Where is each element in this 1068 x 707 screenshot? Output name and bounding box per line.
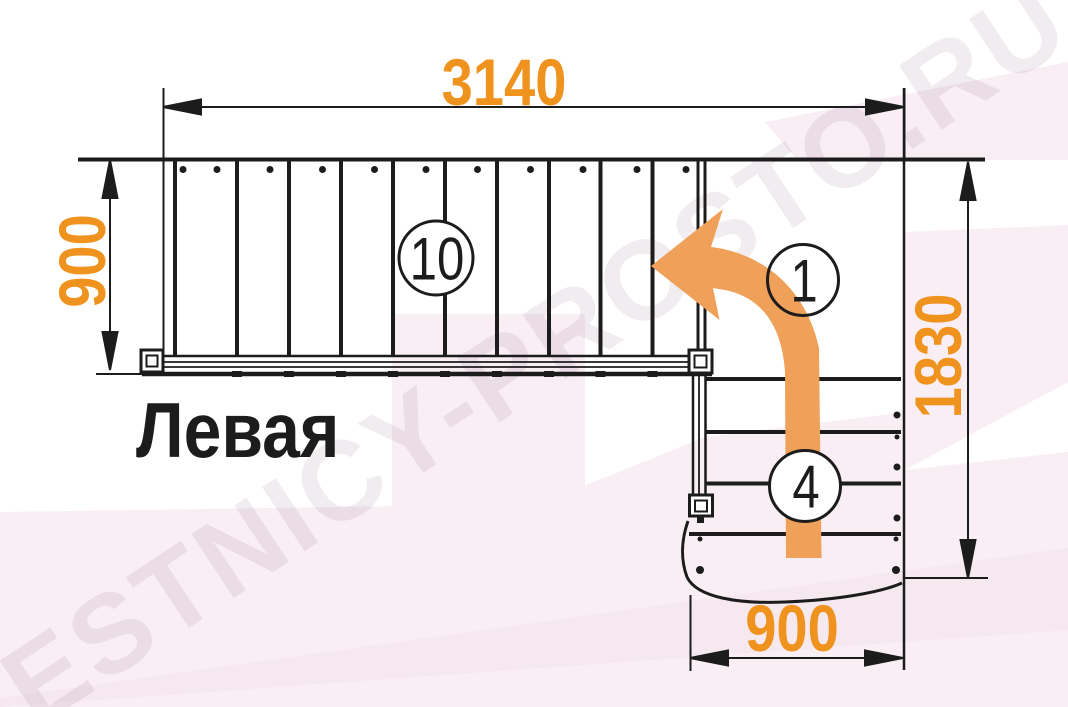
- dimension-left-value: 900: [44, 214, 120, 308]
- upper-baluster-dots: [180, 166, 690, 173]
- lower-steps-count: 4: [792, 453, 819, 522]
- turn-number: 1: [790, 247, 817, 316]
- upper-flight: [78, 88, 985, 377]
- upper-steps-count: 10: [410, 225, 465, 294]
- dimension-right-value: 1830: [900, 294, 976, 419]
- lower-stringer: [693, 373, 706, 496]
- staircase-plan-diagram: LESTNICY-PROSTO.RU: [0, 0, 1068, 707]
- plan-title: Левая: [136, 385, 340, 476]
- post-foot: [697, 517, 704, 523]
- dimension-top-value: 3140: [442, 44, 567, 120]
- dimension-bottom-value: 900: [745, 590, 839, 666]
- newel-post: [690, 495, 713, 516]
- upper-stringer: [142, 356, 712, 374]
